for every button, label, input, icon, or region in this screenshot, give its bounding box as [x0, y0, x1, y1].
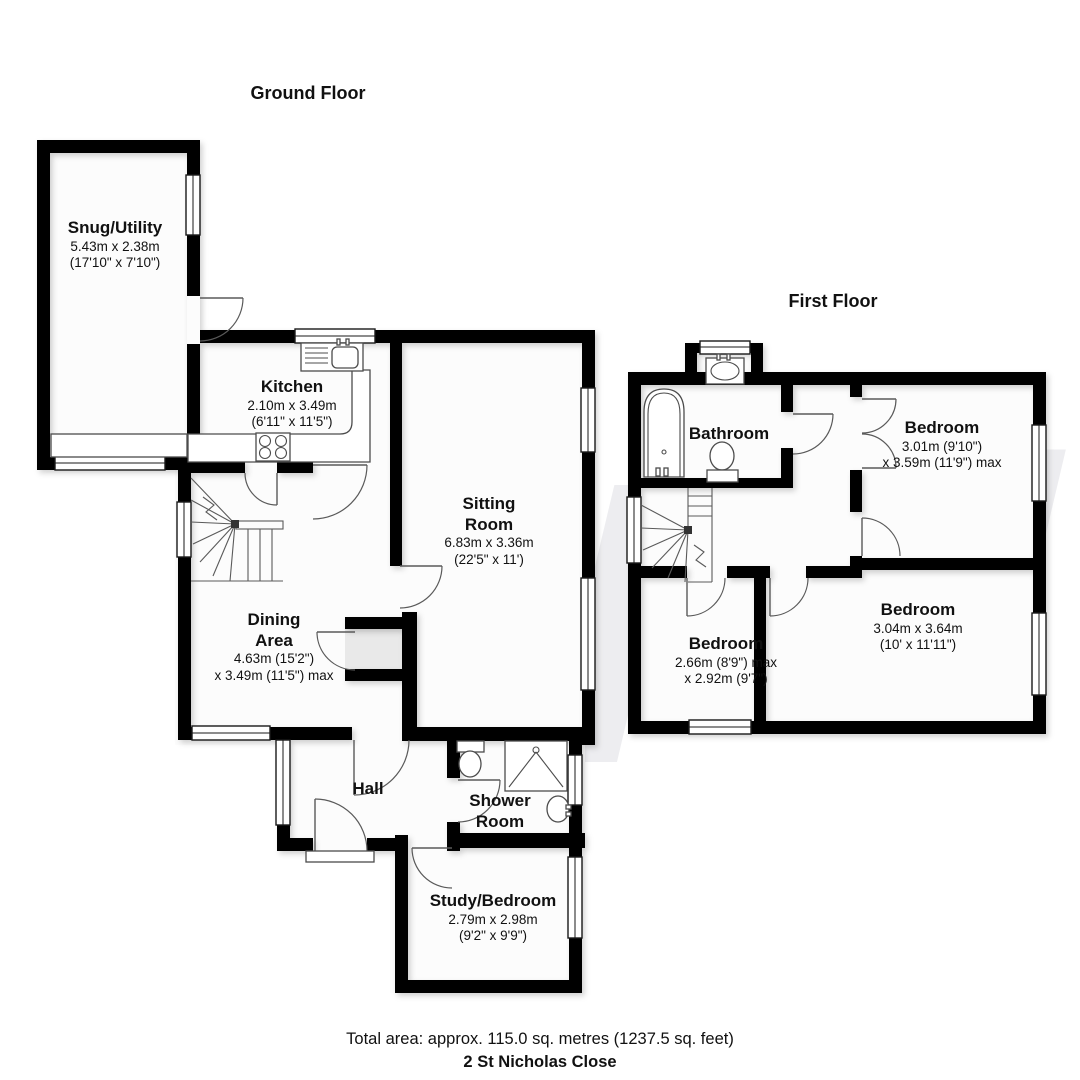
front-door-step — [306, 851, 374, 862]
ground-floor-title: Ground Floor — [251, 83, 366, 104]
understairs-cupboard — [345, 629, 402, 669]
room-label-bedroom-bottom-left: Bedroom 2.66m (8'9") max x 2.92m (9'7") — [675, 634, 777, 688]
window-ff-left — [627, 497, 641, 563]
window-stairs-ground — [177, 502, 191, 557]
room-label-snug-utility: Snug/Utility 5.43m x 2.38m (17'10" x 7'1… — [68, 218, 162, 272]
shower-icon — [505, 741, 567, 791]
window-sitting-upper — [581, 388, 595, 452]
room-label-study-bedroom: Study/Bedroom 2.79m x 2.98m (9'2" x 9'9"… — [430, 891, 557, 945]
room-label-hall: Hall — [352, 779, 383, 800]
window-study-right — [568, 857, 582, 938]
window-ff-right-top — [1032, 425, 1046, 501]
room-label-bathroom: Bathroom — [689, 424, 769, 445]
room-label-kitchen: Kitchen 2.10m x 3.49m (6'11" x 11'5") — [247, 377, 336, 431]
window-snug-right — [186, 175, 200, 235]
total-area-text: Total area: approx. 115.0 sq. metres (12… — [346, 1030, 734, 1049]
kitchen-sink-icon — [301, 339, 363, 371]
window-hall-left — [276, 740, 290, 825]
room-label-sitting-room: Sitting Room 6.83m x 3.36m (22'5" x 11') — [444, 494, 533, 568]
bath-icon — [644, 389, 684, 477]
window-sitting-lower — [581, 578, 595, 690]
basin-bathroom-icon — [706, 354, 744, 384]
window-snug-bottom — [55, 456, 165, 470]
window-ff-right-bottom — [1032, 613, 1046, 695]
window-ff-bottom — [689, 720, 751, 734]
hob-icon — [256, 433, 290, 461]
floorplan-page: W W — [0, 0, 1080, 1080]
room-label-bedroom-top-right: Bedroom 3.01m (9'10") x 3.59m (11'9") ma… — [883, 418, 1002, 472]
window-kitchen — [295, 329, 375, 343]
window-shower-right — [568, 755, 582, 805]
first-floor-title: First Floor — [789, 291, 878, 312]
room-label-shower-room: Shower Room — [469, 791, 530, 832]
room-label-bedroom-bottom-right: Bedroom 3.04m x 3.64m (10' x 11'11") — [873, 600, 962, 654]
window-ff-bathroom — [700, 341, 750, 354]
window-dining-bottom — [192, 726, 270, 740]
address-text: 2 St Nicholas Close — [463, 1053, 616, 1072]
room-label-dining-area: Dining Area 4.63m (15'2") x 3.49m (11'5"… — [215, 610, 334, 684]
worktop-snug — [51, 434, 187, 457]
